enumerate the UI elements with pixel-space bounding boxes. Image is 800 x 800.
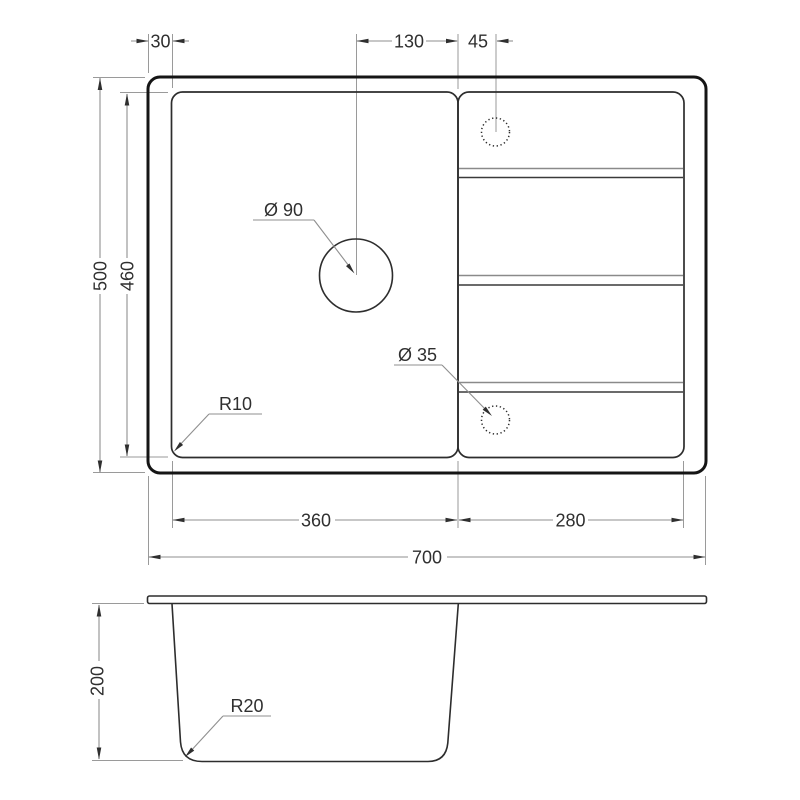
dim-arrow [137,39,149,44]
dim-arrow [694,555,706,560]
dim-arrow [97,605,102,617]
dim-arrow [97,748,102,760]
dim-label-360: 360 [301,510,331,530]
callout-drain-hole-diameter: Ø 90 [253,200,356,275]
leader-line [314,220,352,270]
callout-bottom-radius: R20 [183,696,271,759]
leader-line [177,414,209,448]
dim-arrow [173,518,185,523]
label-tap-diameter: Ø 35 [398,345,437,365]
dim-arrow [497,39,509,44]
basin-bowl [172,92,459,458]
drainboard-grooves [459,169,683,393]
dim-label-460: 460 [117,261,137,291]
drainboard [458,92,684,458]
dimension-rim-offset: 30 [131,31,189,51]
label-drain-diameter: Ø 90 [264,200,303,220]
dim-label-130: 130 [394,31,424,51]
leader-line [442,365,489,413]
dim-arrow [173,39,185,44]
dim-label-30: 30 [150,31,170,51]
extension-lines-top-view [93,34,706,565]
label-corner-radius: R10 [219,394,252,414]
dimension-overall-depth: 500 [90,78,110,473]
leader-arrow [172,442,183,453]
dim-arrow [98,78,103,90]
dim-arrow [459,518,471,523]
dim-arrow [672,518,684,523]
dim-label-45: 45 [468,31,488,51]
dim-label-700: 700 [412,547,442,567]
callout-corner-radius: R10 [172,394,262,453]
sink-flange-profile [148,596,707,604]
dimension-bowl-depth: 200 [87,605,107,760]
side-view: 200 R20 [87,596,706,762]
drawing-svg: 30 130 45 500 [0,0,800,800]
dim-arrow [125,445,130,457]
label-bottom-radius: R20 [230,696,263,716]
leader-line [188,716,223,754]
dimension-hole-to-divider: 130 [357,31,459,51]
dim-label-280: 280 [555,510,585,530]
dim-arrow [98,461,103,473]
dim-label-500: 500 [90,261,110,291]
dim-arrow [149,555,161,560]
dim-arrow [446,518,458,523]
dimension-tap-hole-offset: 45 [468,31,513,51]
top-view: 30 130 45 500 [90,31,706,567]
dimension-drainboard-width: 280 [459,510,684,530]
dimension-inner-depth: 460 [117,94,137,457]
dim-arrow [125,94,130,106]
callout-tap-hole-diameter: Ø 35 [394,345,494,418]
dim-arrow [357,39,369,44]
dimension-overall-width: 700 [149,547,706,567]
dim-arrow [446,39,458,44]
leader-arrow [346,263,356,274]
leader-arrow [183,748,194,759]
sink-technical-drawing: 30 130 45 500 [0,0,800,800]
leader-arrow [483,407,494,418]
dimension-basin-width: 360 [173,510,458,530]
bowl-profile [172,604,458,762]
dim-label-200: 200 [87,666,107,696]
